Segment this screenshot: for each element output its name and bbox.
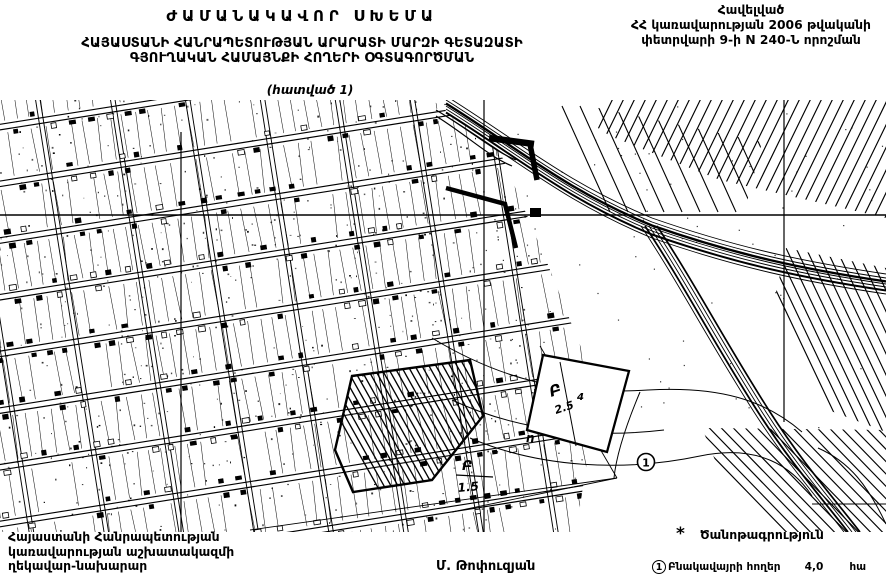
circled-1-icon: 1 xyxy=(652,560,666,574)
legend-item-label: Բնակավայրի հողեր xyxy=(668,561,781,573)
signature-line1: Հայաստանի Հանրապետության xyxy=(8,530,234,545)
legend-item-unit: հա xyxy=(849,561,866,573)
signature-line3: ղեկավար-նախարար xyxy=(8,559,234,574)
scanned-scheme-page: ԺԱՄԱՆԱԿԱՎՈՐ ՍԽԵՄԱ ՀԱՅԱՍՏԱՆԻ ՀԱՆՐԱՊԵՏՈՒԹՅ… xyxy=(0,0,886,584)
legend-item-value: 4,0 xyxy=(805,561,824,573)
page-title: ԺԱՄԱՆԱԿԱՎՈՐ ՍԽԵՄԱ xyxy=(27,7,577,25)
signatory-name: Մ. Թոփուզյան xyxy=(436,559,535,574)
map-label: Բ xyxy=(462,459,473,474)
annex-line1: Հավելված xyxy=(614,3,886,18)
page-subtitle-line2: ԳՅՈՒՂԱԿԱՆ ՀԱՄԱՅՆՔԻ ՀՈՂԵՐԻ ՕԳՏԱԳՈՐԾՄԱՆ xyxy=(27,51,577,66)
map-label: 4 xyxy=(576,392,584,403)
asterisk-icon: * xyxy=(676,528,685,540)
page-subtitle-line1: ՀԱՅԱՍՏԱՆԻ ՀԱՆՐԱՊԵՏՈՒԹՅԱՆ ԱՐԱՐԱՏԻ ՄԱՐԶԻ Գ… xyxy=(27,36,577,51)
annex-line2: ՀՀ կառավարության 2006 թվականի xyxy=(614,18,886,33)
legend-note: * Ծանոթագրություն xyxy=(676,527,824,542)
annex-line3: փետրվարի 9-ի N 240-Ն որոշման xyxy=(614,33,886,48)
cadastral-map-canvas: 1Բ2.5ո4Բ1.5 xyxy=(0,100,886,532)
map-label: 1.5 xyxy=(457,479,479,495)
signature-block: Հայաստանի Հանրապետության կառավարության ա… xyxy=(8,530,234,574)
map-label: ո xyxy=(526,431,535,445)
signature-line2: կառավարության աշխատակազմի xyxy=(8,545,234,560)
annex-block: Հավելված ՀՀ կառավարության 2006 թվականի փ… xyxy=(614,3,886,48)
map-section-label: (հատված 1) xyxy=(235,83,385,97)
map-marker-1: 1 xyxy=(642,457,650,470)
legend-note-label: Ծանոթագրություն xyxy=(700,527,824,542)
legend-item-settlement-lands: 1 Բնակավայրի հողեր 4,0 հա xyxy=(652,560,866,574)
title-block: ԺԱՄԱՆԱԿԱՎՈՐ ՍԽԵՄԱ ՀԱՅԱՍՏԱՆԻ ՀԱՆՐԱՊԵՏՈՒԹՅ… xyxy=(27,7,577,67)
